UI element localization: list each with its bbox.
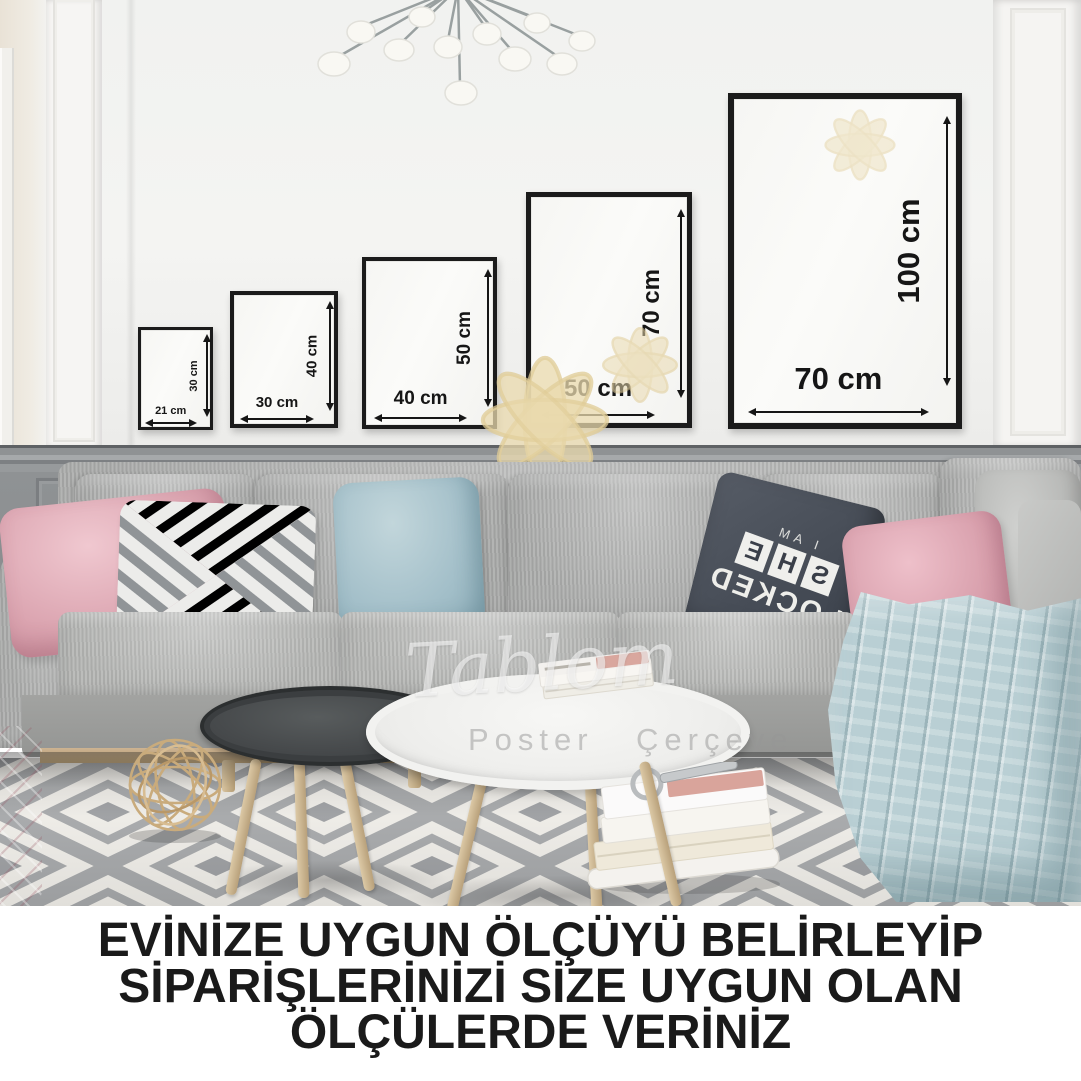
pillow-letter: E — [734, 531, 773, 572]
vertical-arrow — [329, 303, 331, 409]
horizontal-arrow — [376, 417, 465, 419]
width-dimension: 50 cm — [543, 381, 652, 418]
height-label: 50 cm — [454, 311, 476, 365]
height-dimension: 100 cm — [871, 118, 949, 384]
height-dimension: 70 cm — [622, 211, 682, 396]
book-stack-on-rug — [575, 762, 790, 894]
horizontal-arrow — [750, 411, 928, 413]
vertical-arrow — [206, 336, 208, 416]
left-edge-molding — [0, 48, 14, 447]
width-label: 70 cm — [750, 361, 928, 397]
height-dimension: 40 cm — [293, 303, 331, 409]
frame-70x100: 100 cm 70 cm — [728, 93, 962, 429]
brand-watermark-word1: Poster — [468, 722, 594, 758]
brand-watermark-word2: Çerçeve — [636, 722, 793, 758]
width-label: 30 cm — [242, 394, 312, 411]
product-photo: 30 cm 21 cm 40 cm 30 cm 50 cm 40 cm 70 c… — [0, 0, 1081, 1081]
caption-line-1: EVİNİZE UYGUN ÖLÇÜYÜ BELİRLEYİP — [98, 918, 983, 964]
gold-wire-sphere — [118, 730, 233, 845]
frame-30x40: 40 cm 30 cm — [230, 291, 338, 428]
height-label: 70 cm — [638, 269, 666, 337]
right-pilaster — [993, 0, 1081, 447]
left-pilaster — [46, 0, 102, 447]
vertical-arrow — [487, 271, 489, 406]
frame-21x30: 30 cm 21 cm — [138, 327, 213, 430]
frame-50x70: 70 cm 50 cm — [526, 192, 692, 428]
width-dimension: 70 cm — [750, 368, 928, 416]
width-label: 50 cm — [543, 375, 652, 403]
height-dimension: 50 cm — [441, 271, 489, 406]
knit-throw-blanket — [828, 592, 1081, 902]
horizontal-arrow — [242, 418, 312, 420]
left-pilaster-panel — [53, 0, 95, 442]
caption-area: EVİNİZE UYGUN ÖLÇÜYÜ BELİRLEYİP SİPARİŞL… — [0, 906, 1081, 1081]
pink-ottoman — [0, 726, 42, 908]
wall-corner-shadow — [126, 0, 136, 447]
right-pilaster-panel — [1010, 8, 1066, 436]
width-dimension: 40 cm — [376, 392, 465, 421]
height-label: 40 cm — [303, 334, 320, 377]
frame-40x50: 50 cm 40 cm — [362, 257, 497, 429]
width-dimension: 21 cm — [147, 408, 195, 425]
height-label: 100 cm — [891, 199, 927, 304]
caption-line-2: SİPARİŞLERİNİZİ SİZE UYGUN OLAN — [118, 964, 963, 1010]
horizontal-arrow — [543, 414, 652, 416]
branch-chandelier — [308, 0, 598, 115]
pillow-letter: H — [767, 543, 806, 584]
vertical-arrow — [680, 211, 682, 396]
height-label: 30 cm — [188, 360, 200, 391]
caption-line-3: ÖLÇÜLERDE VERİNİZ — [290, 1010, 791, 1056]
width-label: 21 cm — [147, 405, 195, 417]
width-dimension: 30 cm — [242, 398, 312, 421]
vertical-arrow — [946, 118, 948, 384]
horizontal-arrow — [147, 422, 195, 424]
width-label: 40 cm — [376, 388, 465, 410]
height-dimension: 30 cm — [180, 336, 208, 416]
pillow-letter: S — [800, 555, 839, 596]
